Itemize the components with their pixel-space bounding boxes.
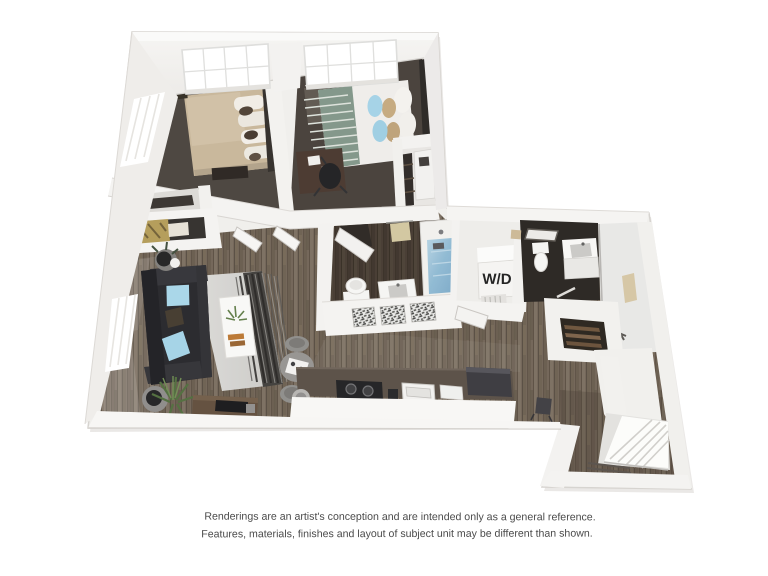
svg-text:Renderings are an artist's con: Renderings are an artist's conception an… bbox=[204, 511, 595, 524]
svg-text:Features, materials, finishes: Features, materials, finishes and layout… bbox=[201, 528, 592, 541]
